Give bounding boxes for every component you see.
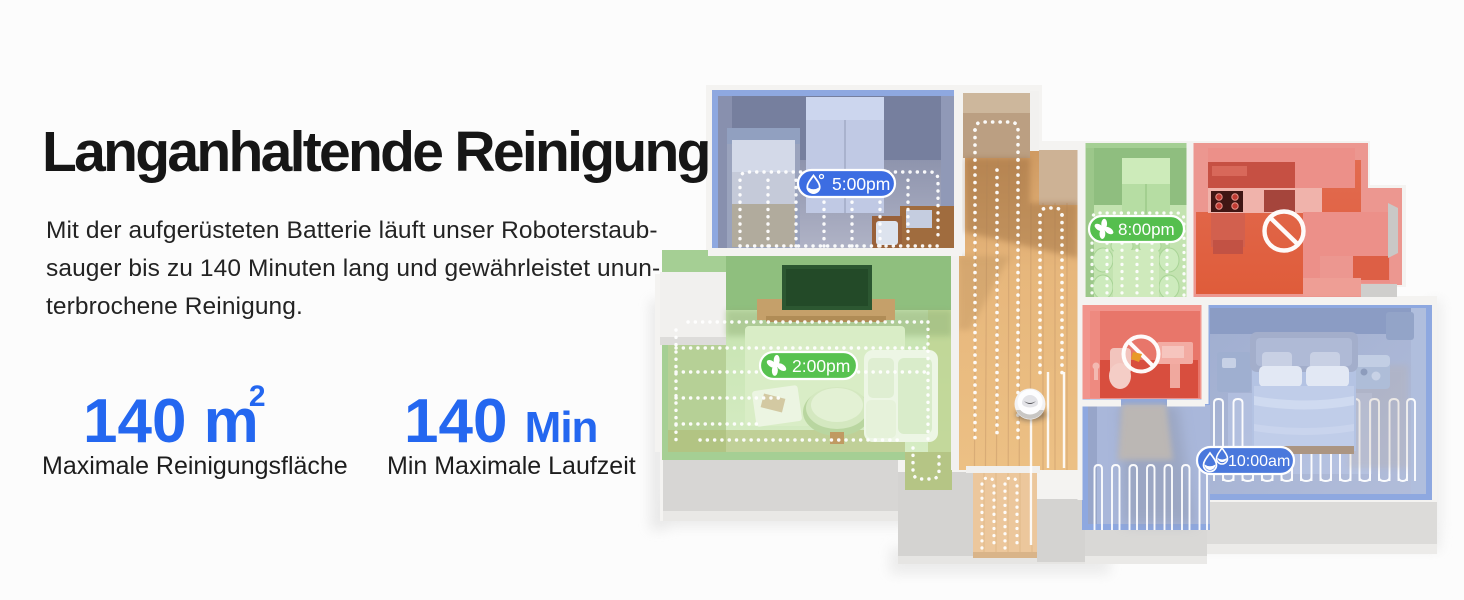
svg-text:8:00pm: 8:00pm: [1118, 220, 1175, 239]
svg-text:2:00pm: 2:00pm: [792, 356, 850, 376]
svg-text:10:00am: 10:00am: [1228, 453, 1290, 470]
svg-text:5:00pm: 5:00pm: [832, 174, 890, 194]
